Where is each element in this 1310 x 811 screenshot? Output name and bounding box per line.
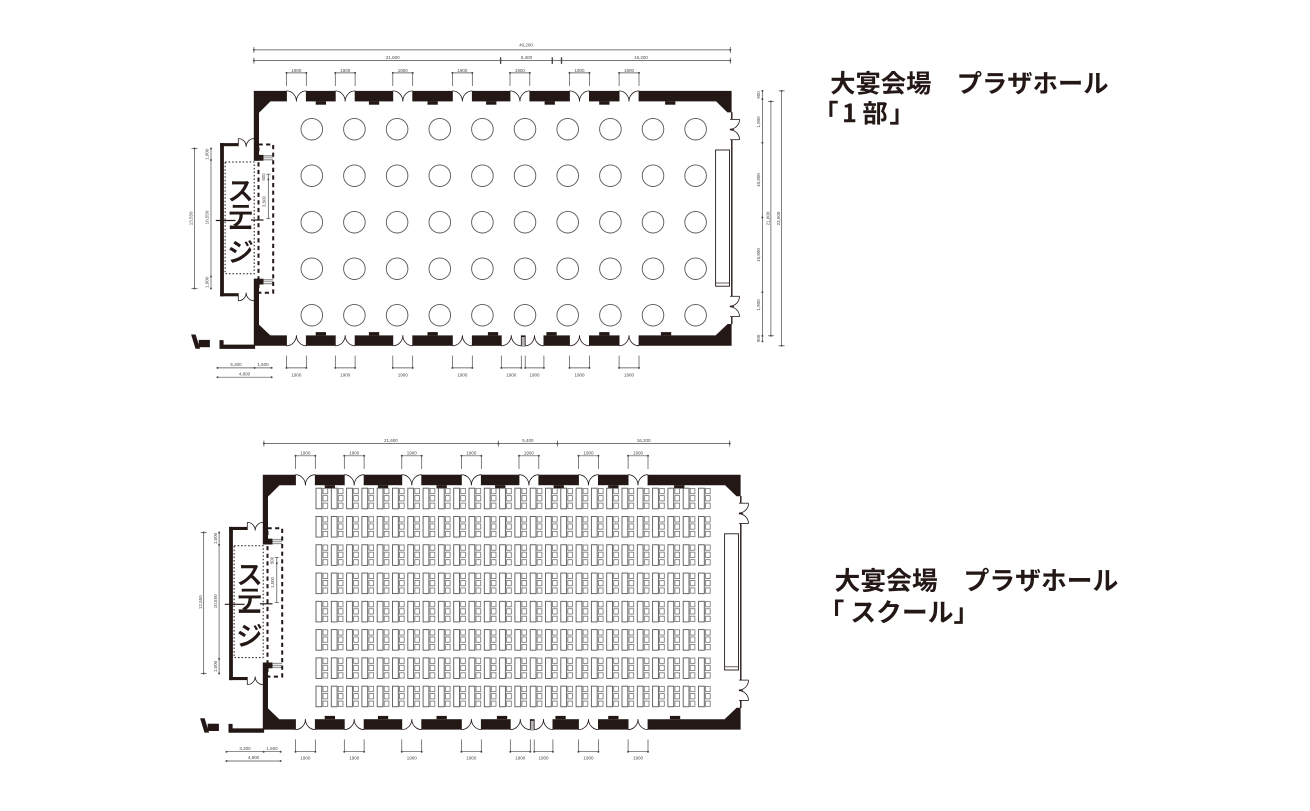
svg-text:1900: 1900 <box>515 68 526 73</box>
svg-text:16,200: 16,200 <box>637 438 651 443</box>
svg-text:900: 900 <box>756 334 761 342</box>
svg-text:1900: 1900 <box>515 755 526 760</box>
svg-text:1900: 1900 <box>466 755 477 760</box>
svg-text:3,500: 3,500 <box>261 195 266 207</box>
svg-text:500: 500 <box>261 173 266 181</box>
svg-text:21,600: 21,600 <box>386 55 400 60</box>
svg-text:1900: 1900 <box>624 68 635 73</box>
svg-text:1900: 1900 <box>574 372 585 377</box>
svg-text:5,400: 5,400 <box>522 438 534 443</box>
svg-text:1900: 1900 <box>407 451 418 456</box>
svg-text:10,550: 10,550 <box>213 594 218 608</box>
svg-text:1900: 1900 <box>524 451 535 456</box>
svg-text:16,200: 16,200 <box>634 55 648 60</box>
svg-text:1900: 1900 <box>300 451 311 456</box>
svg-text:40,200: 40,200 <box>519 43 533 48</box>
svg-text:1900: 1900 <box>466 451 477 456</box>
svg-text:1,500: 1,500 <box>270 576 275 588</box>
svg-text:1900: 1900 <box>340 68 351 73</box>
svg-text:4,800: 4,800 <box>239 371 251 376</box>
svg-text:12,550: 12,550 <box>198 595 203 609</box>
svg-text:1,900: 1,900 <box>756 299 761 311</box>
svg-text:1900: 1900 <box>457 68 468 73</box>
svg-text:1900: 1900 <box>407 755 418 760</box>
svg-text:1,000: 1,000 <box>213 660 218 672</box>
svg-text:10,800: 10,800 <box>756 248 761 262</box>
svg-text:13,550: 13,550 <box>189 211 194 225</box>
svg-text:1,000: 1,000 <box>213 532 218 544</box>
svg-text:10,550: 10,550 <box>205 210 210 224</box>
svg-text:1900: 1900 <box>340 372 351 377</box>
svg-text:1900: 1900 <box>538 755 549 760</box>
svg-text:1900: 1900 <box>506 372 517 377</box>
svg-text:1900: 1900 <box>457 372 468 377</box>
svg-text:5,400: 5,400 <box>521 55 533 60</box>
svg-text:1900: 1900 <box>291 68 302 73</box>
svg-text:1,500: 1,500 <box>266 746 278 751</box>
svg-text:1900: 1900 <box>583 451 594 456</box>
svg-text:1,900: 1,900 <box>756 116 761 128</box>
svg-text:3,300: 3,300 <box>239 746 251 751</box>
svg-text:1,000: 1,000 <box>205 148 210 160</box>
svg-text:1,000: 1,000 <box>205 276 210 288</box>
svg-text:1900: 1900 <box>349 755 360 760</box>
svg-text:5,300: 5,300 <box>230 362 242 367</box>
svg-text:4,800: 4,800 <box>248 755 260 760</box>
svg-text:1900: 1900 <box>529 372 540 377</box>
svg-text:1900: 1900 <box>398 68 409 73</box>
svg-text:10,800: 10,800 <box>756 173 761 187</box>
svg-text:1900: 1900 <box>633 755 644 760</box>
svg-text:1900: 1900 <box>291 372 302 377</box>
svg-text:1900: 1900 <box>583 755 594 760</box>
svg-text:1900: 1900 <box>300 755 311 760</box>
svg-text:1,500: 1,500 <box>257 362 269 367</box>
svg-text:1900: 1900 <box>633 451 644 456</box>
svg-text:1900: 1900 <box>398 372 409 377</box>
svg-text:21,600: 21,600 <box>384 438 398 443</box>
svg-text:23,500: 23,500 <box>776 211 781 225</box>
svg-text:21,600: 21,600 <box>765 211 770 225</box>
svg-text:1900: 1900 <box>624 372 635 377</box>
svg-text:1900: 1900 <box>574 68 585 73</box>
svg-text:900: 900 <box>756 91 761 99</box>
svg-text:500: 500 <box>270 556 275 564</box>
svg-text:1900: 1900 <box>349 451 360 456</box>
